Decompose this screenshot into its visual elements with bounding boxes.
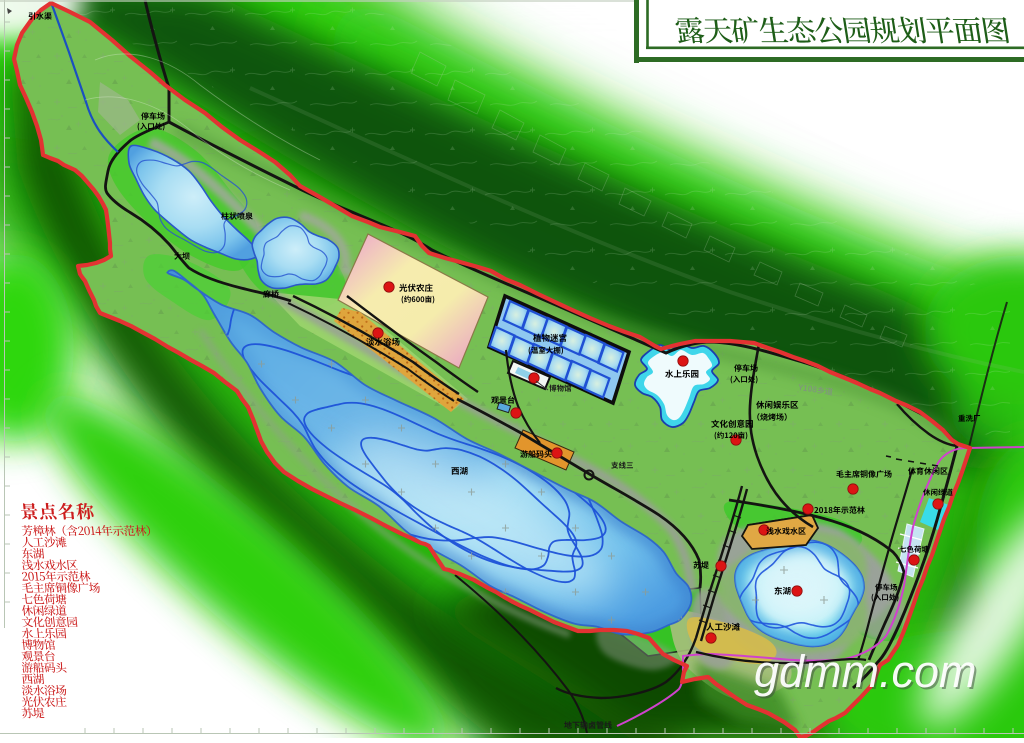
svg-text:gdmm.com: gdmm.com bbox=[754, 646, 977, 697]
